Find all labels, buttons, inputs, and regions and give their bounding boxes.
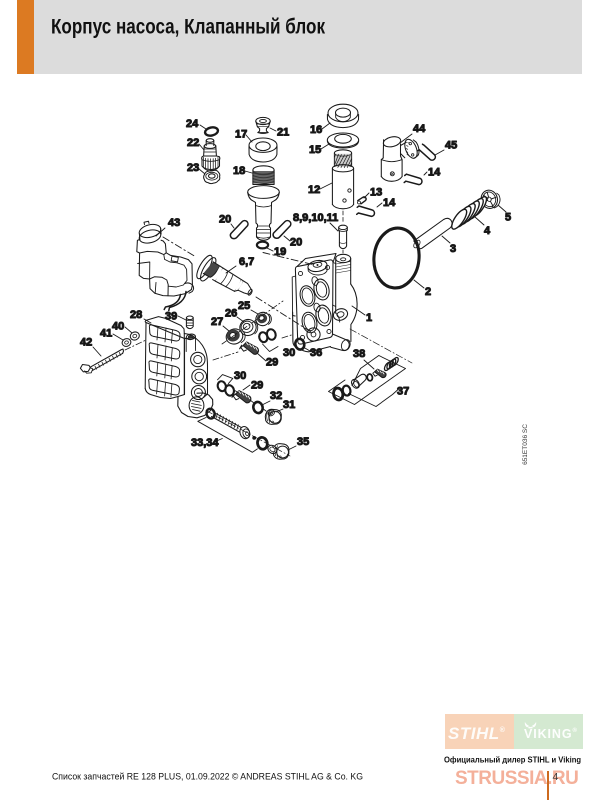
svg-text:14: 14 <box>383 197 396 209</box>
svg-text:13: 13 <box>370 187 382 199</box>
svg-text:17: 17 <box>235 129 247 141</box>
svg-text:29: 29 <box>266 357 278 369</box>
svg-text:28: 28 <box>130 309 142 321</box>
svg-text:Список запчастей RE 128 PLUS,: Список запчастей RE 128 PLUS, 01.09.2022… <box>52 772 363 782</box>
svg-text:26: 26 <box>225 308 237 320</box>
svg-text:5: 5 <box>505 212 511 224</box>
svg-text:23: 23 <box>187 162 199 174</box>
svg-text:33,34: 33,34 <box>191 437 219 449</box>
svg-text:20: 20 <box>219 214 231 226</box>
svg-text:2: 2 <box>425 286 431 298</box>
svg-text:15: 15 <box>309 144 321 156</box>
svg-text:25: 25 <box>238 300 250 312</box>
svg-text:36: 36 <box>310 347 322 359</box>
svg-text:37: 37 <box>397 386 409 398</box>
svg-text:41: 41 <box>100 328 112 340</box>
svg-text:3: 3 <box>450 243 456 255</box>
svg-text:Официальный дилер STIHL и Viki: Официальный дилер STIHL и Viking <box>444 755 581 765</box>
svg-text:42: 42 <box>80 337 92 349</box>
svg-text:12: 12 <box>308 184 320 196</box>
svg-text:32: 32 <box>270 390 282 402</box>
svg-text:24: 24 <box>186 118 199 130</box>
svg-text:6,7: 6,7 <box>239 256 254 268</box>
svg-text:14: 14 <box>428 167 441 179</box>
svg-text:27: 27 <box>211 316 223 328</box>
svg-text:18: 18 <box>233 165 245 177</box>
svg-text:4: 4 <box>484 225 491 237</box>
svg-text:1: 1 <box>366 312 372 324</box>
svg-text:43: 43 <box>168 217 180 229</box>
svg-text:20: 20 <box>290 237 302 249</box>
svg-text:35: 35 <box>297 436 309 448</box>
svg-text:16: 16 <box>310 124 322 136</box>
svg-text:44: 44 <box>413 123 426 135</box>
svg-text:8,9,10,11: 8,9,10,11 <box>293 212 338 224</box>
svg-text:40: 40 <box>112 321 124 333</box>
svg-text:30: 30 <box>234 370 246 382</box>
svg-text:45: 45 <box>445 140 457 152</box>
svg-text:29: 29 <box>251 380 263 392</box>
svg-text:31: 31 <box>283 399 295 411</box>
svg-text:21: 21 <box>277 127 289 139</box>
svg-text:22: 22 <box>187 137 199 149</box>
svg-text:30: 30 <box>283 347 295 359</box>
svg-text:39: 39 <box>165 311 177 323</box>
svg-text:38: 38 <box>353 348 365 360</box>
